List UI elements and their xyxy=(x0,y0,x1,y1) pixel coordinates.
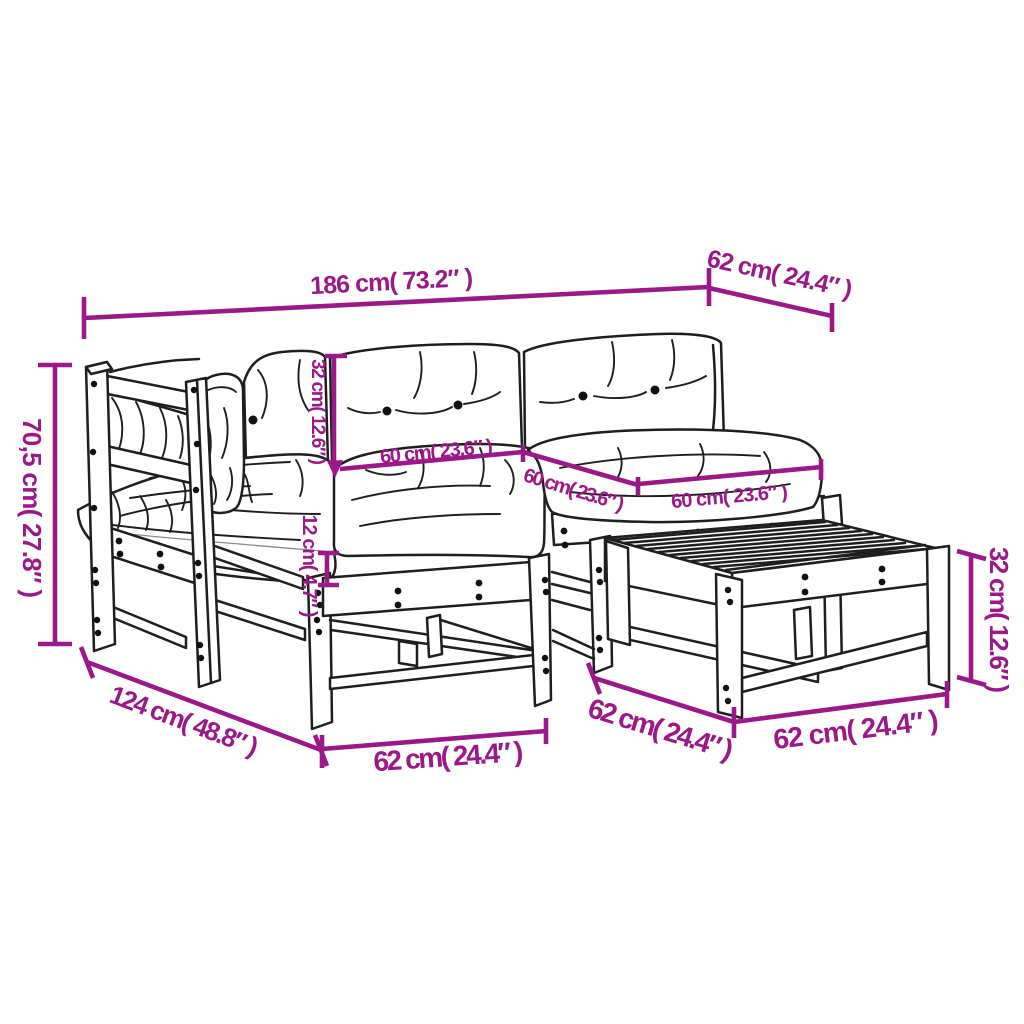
svg-text:32 cm( 12.6″ ): 32 cm( 12.6″ ) xyxy=(984,547,1014,693)
svg-text:32 cm( 12.6″ ): 32 cm( 12.6″ ) xyxy=(307,359,328,465)
svg-text:12 cm( 4.7″ ): 12 cm( 4.7″ ) xyxy=(298,515,320,618)
svg-text:70,5 cm( 27.8″ ): 70,5 cm( 27.8″ ) xyxy=(17,418,47,598)
